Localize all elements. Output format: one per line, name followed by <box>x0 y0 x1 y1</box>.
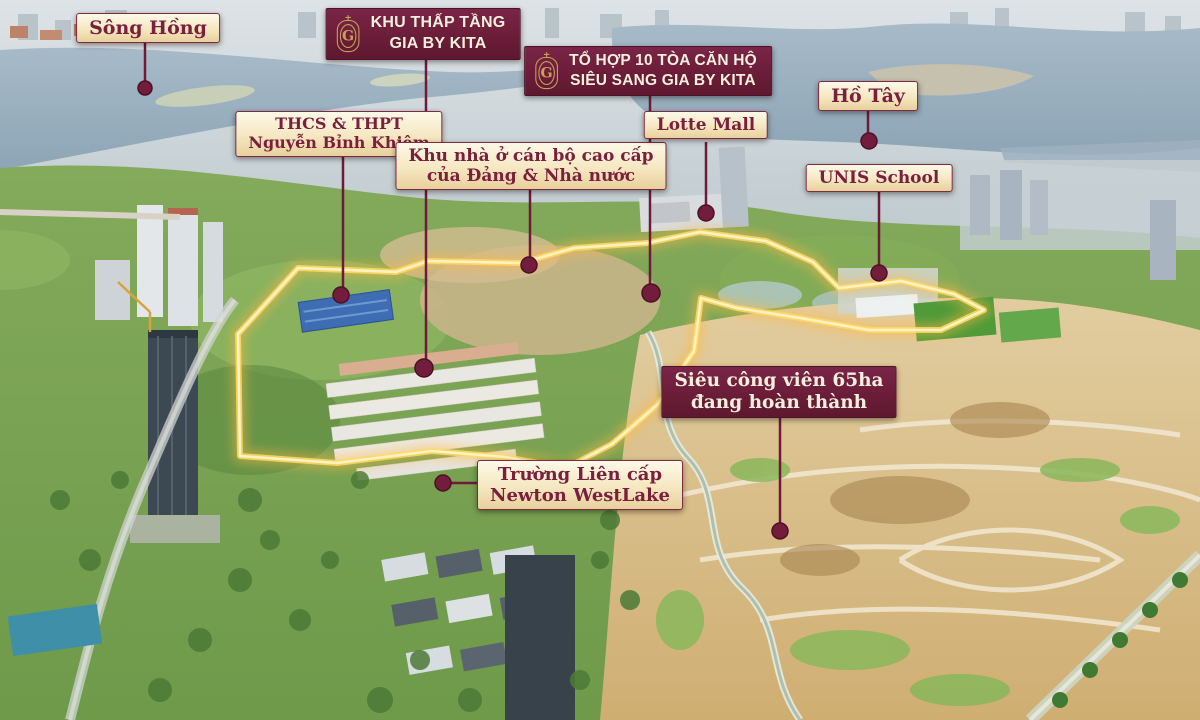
label-line: Siêu công viên 65ha <box>674 370 883 392</box>
kita-monogram: G <box>541 66 553 82</box>
label-khu-thap-tang: G KHU THẤP TẦNG GIA BY KITA <box>326 8 521 60</box>
label-line: đang hoàn thành <box>674 392 883 414</box>
label-line: của Đảng & Nhà nước <box>409 166 654 186</box>
label-unis-school: UNIS School <box>806 164 953 192</box>
label-to-hop: G TỔ HỢP 10 TÒA CĂN HỘ SIÊU SANG GIA BY … <box>524 46 772 96</box>
label-line: GIA BY KITA <box>389 34 486 55</box>
label-khu-nha-o: Khu nhà ở cán bộ cao cấp của Đảng & Nhà … <box>396 142 667 190</box>
label-line: Newton WestLake <box>490 485 670 506</box>
label-line: THCS & THPT <box>248 115 429 134</box>
kita-emblem-icon: G <box>335 14 362 54</box>
aerial-photo-background <box>0 0 1200 720</box>
aerial-annotated-map: Sông Hồng G KHU THẤP TẦNG GIA BY KITA G … <box>0 0 1200 720</box>
dark-highrise <box>505 555 575 720</box>
label-newton: Trường Liên cấp Newton WestLake <box>477 460 683 510</box>
label-sieu-cong-vien: Siêu công viên 65ha đang hoàn thành <box>661 366 896 418</box>
kita-emblem-icon: G <box>533 51 560 91</box>
label-line: KHU THẤP TẦNG <box>371 13 506 34</box>
kita-monogram: G <box>342 29 354 45</box>
label-ho-tay: Hồ Tây <box>818 81 918 111</box>
label-line: Trường Liên cấp <box>490 464 670 485</box>
label-song-hong: Sông Hồng <box>76 13 220 43</box>
label-line: Khu nhà ở cán bộ cao cấp <box>409 146 654 166</box>
label-line: SIÊU SANG GIA BY KITA <box>570 71 756 91</box>
label-lotte-mall: Lotte Mall <box>644 111 768 139</box>
label-line: TỔ HỢP 10 TÒA CĂN HỘ <box>569 51 757 71</box>
